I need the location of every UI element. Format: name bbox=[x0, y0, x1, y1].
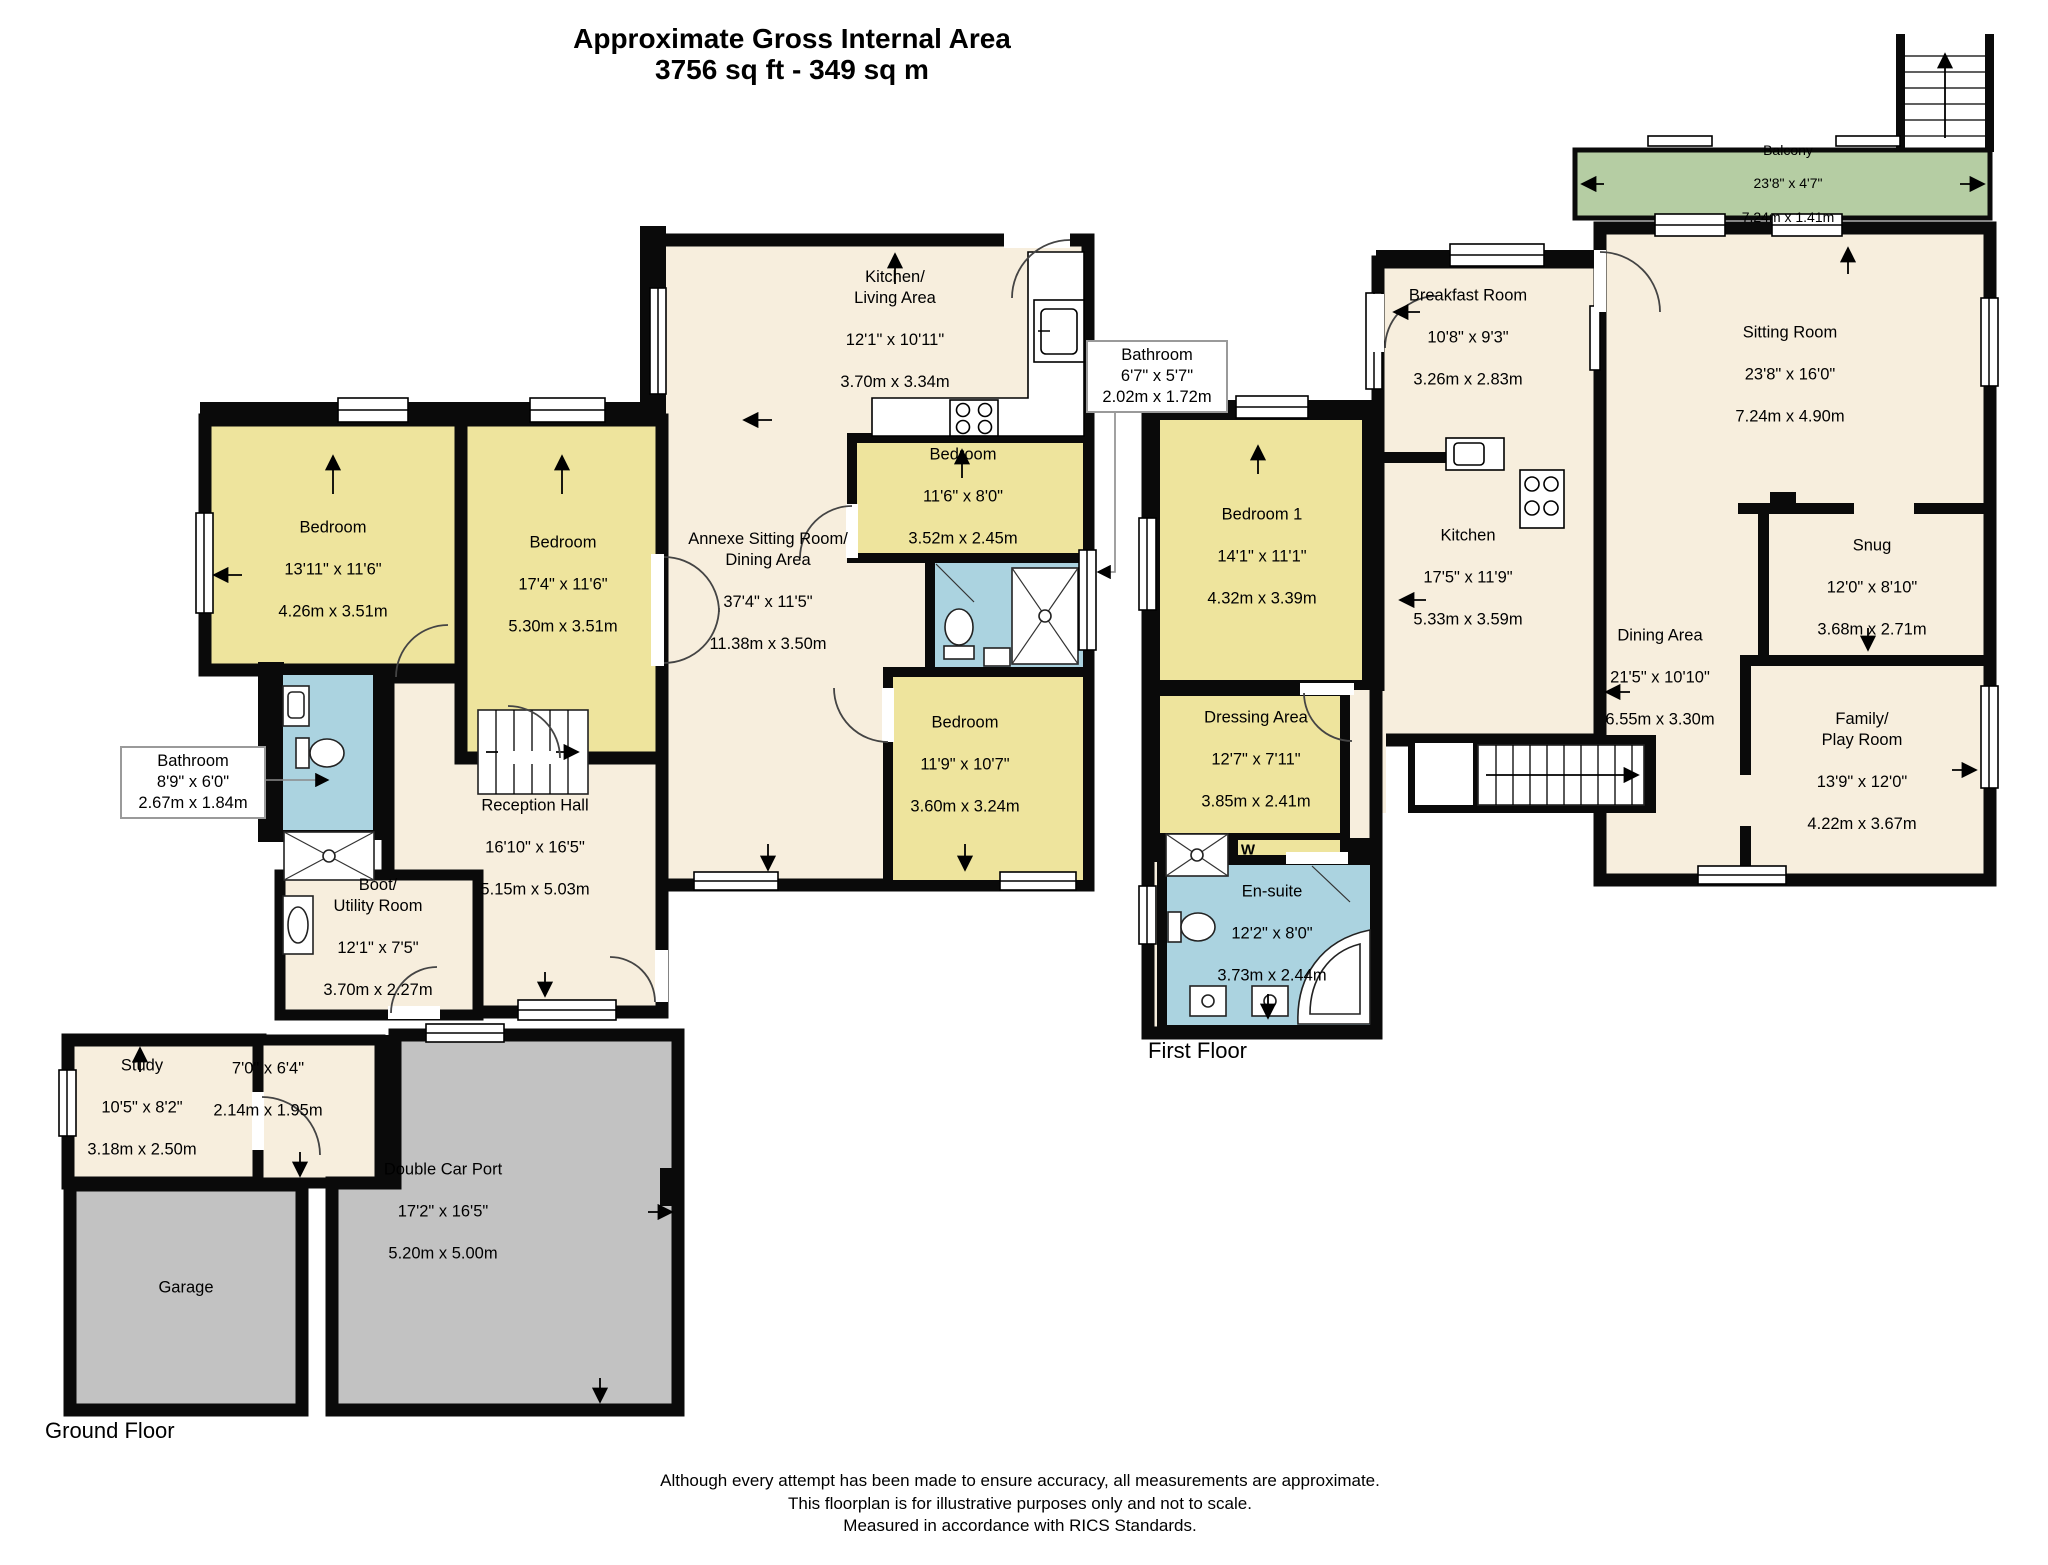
toilet-icon bbox=[944, 646, 974, 659]
title-line2: 3756 sq ft - 349 sq m bbox=[655, 54, 929, 85]
room-label-breakfast-room: Breakfast Room 10'8" x 9'3" 3.26m x 2.83… bbox=[1409, 265, 1527, 412]
room-label-boot-utility: Boot/ Utility Room 12'1" x 7'5" 3.70m x … bbox=[323, 854, 432, 1022]
basin-icon bbox=[984, 648, 1010, 666]
room-label-bedroom-13-11: Bedroom 13'11" x 11'6" 4.26m x 3.51m bbox=[278, 497, 387, 644]
room-label-kitchen-living: Kitchen/ Living Area 12'1" x 10'11" 3.70… bbox=[840, 246, 949, 414]
room-label-dining-area: Dining Area 21'5" x 10'10" 6.55m x 3.30m bbox=[1605, 605, 1714, 752]
sliding-door-icon bbox=[1836, 136, 1900, 146]
room-label-kitchen: Kitchen 17'5" x 11'9" 5.33m x 3.59m bbox=[1413, 505, 1522, 652]
bathroom-callout: Bathroom 8'9" x 6'0" 2.67m x 1.84m bbox=[120, 746, 266, 819]
room-label-reception-hall: Reception Hall 16'10" x 16'5" 5.15m x 5.… bbox=[480, 775, 589, 922]
room-label-family-play-room: Family/ Play Room 13'9" x 12'0" 4.22m x … bbox=[1807, 688, 1916, 856]
page-title: Approximate Gross Internal Area 3756 sq … bbox=[573, 24, 1011, 86]
room-label-garage: Garage bbox=[158, 1257, 213, 1320]
room-label-bedroom-17-4: Bedroom 17'4" x 11'6" 5.30m x 3.51m bbox=[508, 512, 617, 659]
room-label-corridor: 7'0" x 6'4" 2.14m x 1.95m bbox=[213, 1038, 322, 1143]
wardrobe-label: W bbox=[1241, 842, 1255, 859]
room-label-bedroom-11-6: Bedroom 11'6" x 8'0" 3.52m x 2.45m bbox=[908, 424, 1017, 571]
ground-floor-label: Ground Floor bbox=[45, 1418, 175, 1444]
room-label-study: Study 10'5" x 8'2" 3.18m x 2.50m bbox=[87, 1035, 196, 1182]
room-label-ensuite: En-suite 12'2" x 8'0" 3.73m x 2.44m bbox=[1217, 861, 1326, 1008]
bathroom-callout: Bathroom 6'7" x 5'7" 2.02m x 1.72m bbox=[1086, 340, 1228, 413]
disclaimer-text: Although every attempt has been made to … bbox=[660, 1470, 1380, 1538]
radiator-icon bbox=[1590, 306, 1600, 370]
room-label-car-port: Double Car Port 17'2" x 16'5" 5.20m x 5.… bbox=[384, 1139, 502, 1286]
room-label-bedroom-11-9: Bedroom 11'9" x 10'7" 3.60m x 3.24m bbox=[910, 692, 1019, 839]
floorplan-page: Approximate Gross Internal Area 3756 sq … bbox=[0, 0, 2048, 1565]
room-label-dressing-area: Dressing Area 12'7" x 7'11" 3.85m x 2.41… bbox=[1201, 687, 1310, 834]
toilet-icon bbox=[1168, 912, 1181, 942]
room-label-bedroom-1: Bedroom 1 14'1" x 11'1" 4.32m x 3.39m bbox=[1207, 484, 1316, 631]
first-floor-label: First Floor bbox=[1148, 1038, 1247, 1064]
room-label-balcony: Balcony 23'8" x 4'7" 7.24m x 1.41m bbox=[1742, 125, 1835, 243]
callout-leader-line bbox=[1098, 408, 1115, 572]
external-staircase bbox=[1896, 34, 1994, 152]
room-label-annexe-sitting: Annexe Sitting Room/ Dining Area 37'4" x… bbox=[688, 508, 848, 676]
room-label-sitting-room: Sitting Room 23'8" x 16'0" 7.24m x 4.90m bbox=[1735, 302, 1844, 449]
title-line1: Approximate Gross Internal Area bbox=[573, 23, 1011, 54]
sliding-door-icon bbox=[1648, 136, 1712, 146]
toilet-icon bbox=[296, 738, 309, 768]
room-label-snug: Snug 12'0" x 8'10" 3.68m x 2.71m bbox=[1817, 515, 1926, 662]
